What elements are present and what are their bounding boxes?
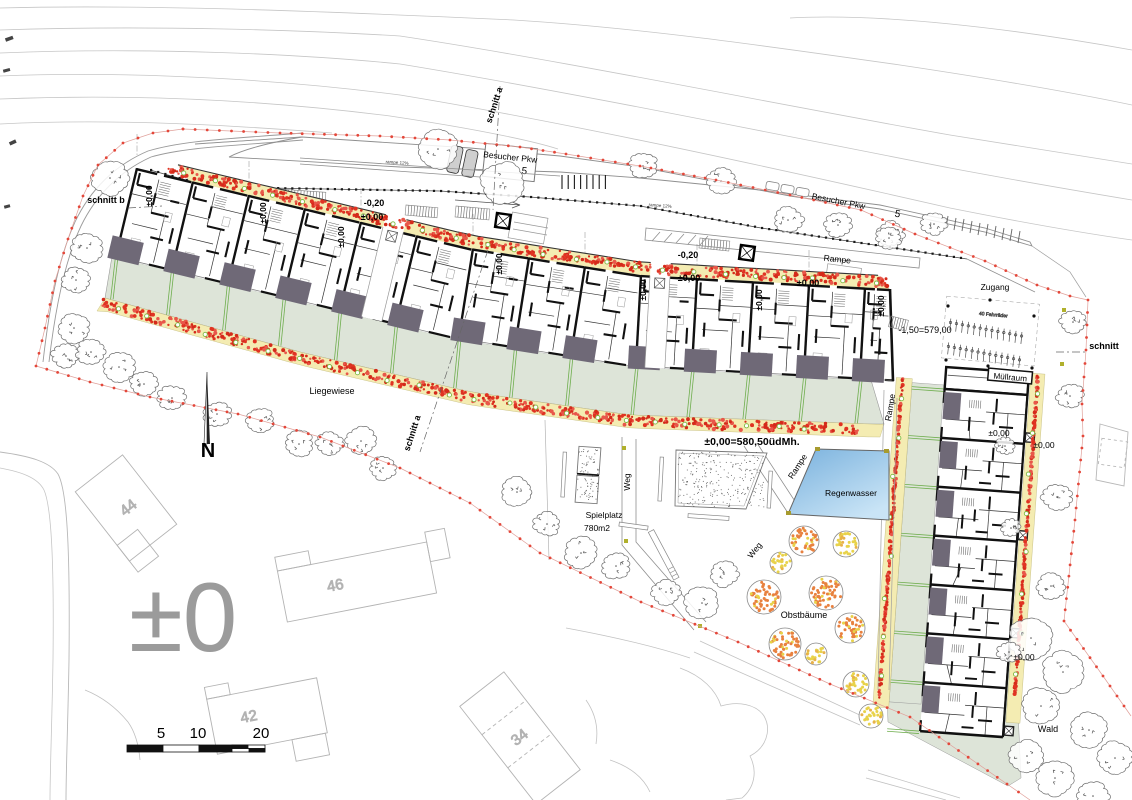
svg-text:20: 20 [253,725,270,742]
svg-text:±0,00: ±0,00 [754,289,764,310]
svg-text:Spielplatz: Spielplatz [586,510,623,520]
svg-text:±0,00: ±0,00 [361,212,383,222]
svg-text:±0,00: ±0,00 [638,279,648,300]
svg-text:Zugang: Zugang [981,282,1010,292]
svg-text:46: 46 [325,576,345,596]
svg-text:±0,00: ±0,00 [1013,652,1034,662]
svg-text:Wald: Wald [1038,724,1058,734]
svg-text:Obstbäume: Obstbäume [781,610,828,620]
svg-text:Regenwasser: Regenwasser [825,488,877,498]
svg-text:-0,20: -0,20 [364,198,385,208]
svg-text:10: 10 [190,725,207,742]
svg-text:Liegewiese: Liegewiese [309,386,354,396]
svg-text:N: N [201,440,215,462]
svg-text:±0,00: ±0,00 [678,273,700,283]
svg-text:±0,00: ±0,00 [876,295,886,316]
svg-text:±0,00: ±0,00 [494,253,504,274]
svg-text:42: 42 [239,707,259,727]
svg-text:5: 5 [157,725,165,742]
svg-text:±0,00=580,50üdMh.: ±0,00=580,50üdMh. [704,436,799,448]
svg-text:schnitt: schnitt [1089,341,1119,351]
svg-text:±0,00: ±0,00 [258,202,268,223]
svg-text:±0,00: ±0,00 [1033,440,1054,450]
svg-text:±0: ±0 [129,562,237,672]
svg-text:±0,00: ±0,00 [336,226,346,247]
svg-text:Weg: Weg [622,473,632,491]
svg-text:schnitt b: schnitt b [87,195,125,205]
svg-text:780m2: 780m2 [584,523,610,533]
svg-text:-0,20: -0,20 [678,250,699,260]
svg-text:±0,00: ±0,00 [988,428,1009,438]
svg-text:±0,00: ±0,00 [797,278,819,288]
svg-text:±0,00: ±0,00 [144,185,154,206]
